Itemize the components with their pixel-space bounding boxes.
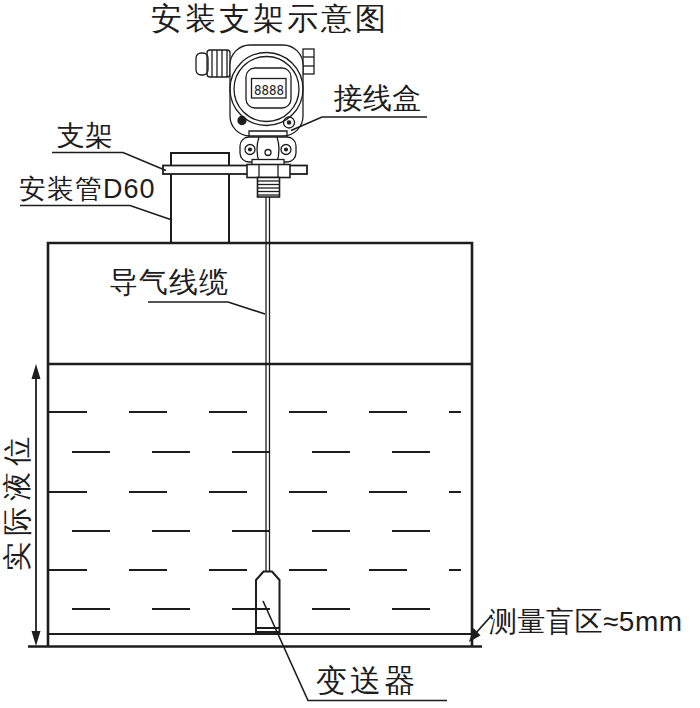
air-cable-label: 导气线缆 bbox=[109, 267, 229, 299]
air-cable-leader-line bbox=[148, 302, 265, 314]
liquid-drawing bbox=[49, 364, 471, 609]
air-cable-line bbox=[266, 197, 270, 572]
pipe-leader-line bbox=[20, 206, 172, 221]
bracket-leader-line bbox=[52, 153, 166, 171]
display-digits: 8888 bbox=[254, 82, 284, 98]
threaded-stem-drawing bbox=[258, 178, 280, 198]
cable-gland-drawing bbox=[196, 50, 230, 77]
blind-zone-label: 测量盲区≈5mm bbox=[489, 607, 683, 638]
installation-diagram: 8888 bbox=[0, 0, 700, 708]
actual-level-label: 实际液位 bbox=[2, 411, 32, 591]
junction-box-label: 接线盒 bbox=[334, 83, 421, 115]
display-window: 8888 bbox=[246, 68, 291, 108]
diagram-title: 安装支架示意图 bbox=[130, 2, 410, 36]
neck-drawing bbox=[240, 137, 296, 162]
hex-nut-drawing bbox=[247, 165, 290, 178]
mounting-pipe-label: 安装管D60 bbox=[19, 175, 156, 205]
junction-box-leader-line bbox=[291, 117, 427, 131]
liquid-dash-pattern bbox=[49, 412, 461, 609]
transmitter-label: 变送器 bbox=[316, 664, 418, 698]
conduit-tab-drawing bbox=[303, 49, 314, 74]
tank-walls bbox=[48, 243, 472, 646]
sensor-probe-drawing bbox=[256, 572, 280, 633]
bracket-label: 支架 bbox=[57, 121, 113, 152]
housing-bolt-left bbox=[238, 117, 246, 125]
